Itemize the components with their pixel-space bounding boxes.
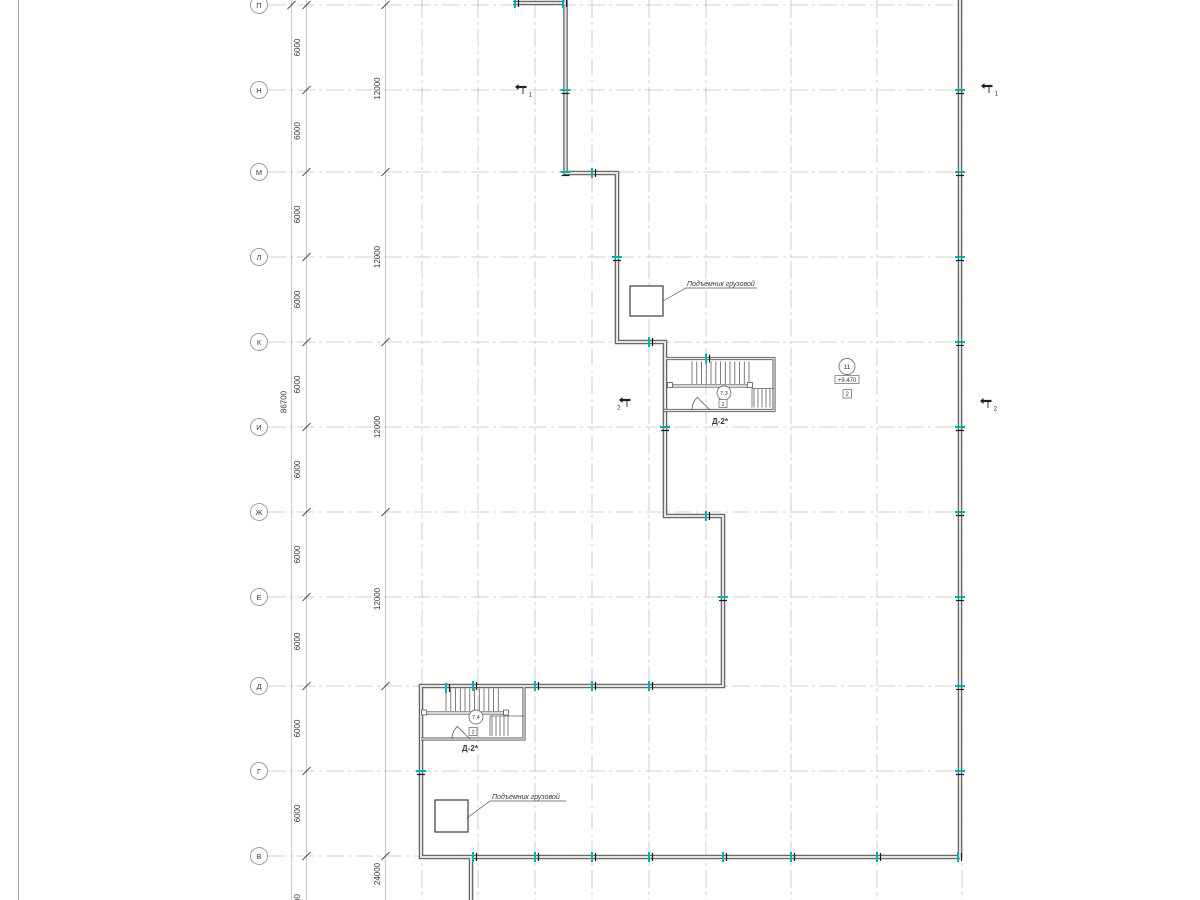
leader-line	[663, 288, 757, 301]
door-mark: 2	[721, 402, 724, 408]
door-swing	[692, 397, 710, 410]
lift-shaft-box	[630, 286, 663, 316]
dimension-label: 6000	[293, 375, 302, 393]
section-arrowhead-icon	[981, 83, 985, 89]
dimension-label: 6000	[293, 804, 302, 822]
axis-label: И	[256, 423, 261, 432]
stair-treads	[692, 362, 749, 385]
door-swing	[452, 726, 470, 739]
elevation-value: +9.470	[838, 378, 857, 384]
stair-flight-edge	[752, 389, 774, 408]
stair-treads	[446, 689, 498, 712]
axis-label: В	[256, 852, 261, 861]
section-mark-1-right: 1	[981, 83, 999, 98]
section-mark-2-left: 2	[617, 397, 631, 412]
wall-outline	[421, 0, 960, 900]
axis-label: К	[257, 338, 262, 347]
section-arrowhead-icon	[515, 84, 519, 90]
stair-upper-tags: 7.3 2 Д-2*	[712, 386, 731, 426]
section-number: 1	[529, 92, 533, 99]
dimension-label: 12000	[373, 77, 382, 100]
freight-lift-upper: Подъемник грузовой	[630, 280, 757, 316]
floor-plan-canvas: ПНМЛКИЖЕДГВ60006000600060006000600060006…	[0, 0, 1200, 900]
room-number: 7.3	[720, 391, 728, 397]
stair-stringer	[424, 712, 506, 714]
freight-lift-lower: Подъемник грузовой	[435, 793, 566, 832]
dimension-label: 12000	[373, 587, 382, 610]
door-type-label: Д-2*	[462, 744, 479, 753]
section-mark-1-left: 1	[515, 84, 533, 99]
leader-line	[467, 801, 566, 818]
dimension-label: 6000	[293, 122, 302, 140]
axis-label: Г	[257, 767, 261, 776]
axis-label: П	[256, 1, 261, 10]
stair-treads	[754, 389, 770, 408]
dimension-label: 12000	[373, 245, 382, 268]
dimension-label: 6000	[293, 460, 302, 478]
axis-label: Е	[256, 593, 261, 602]
dimension-label: 24000	[373, 862, 382, 885]
lift-label: Подъемник грузовой	[687, 280, 755, 288]
wall-ticks	[416, 0, 965, 862]
axis-label: Ж	[256, 508, 263, 517]
level-tag: 11 +9.470 2	[835, 359, 859, 399]
section-number: 1	[995, 91, 999, 98]
room-number: 7.4	[472, 715, 480, 721]
section-number: 2	[994, 406, 998, 413]
stair-treads	[492, 716, 508, 736]
door-mark: 2	[471, 730, 474, 736]
axis-label: Д	[256, 682, 261, 691]
dimension-label: 86700	[280, 390, 289, 413]
dimension-label: 6000	[293, 894, 302, 900]
dimension-label: 6000	[293, 719, 302, 737]
dimension-label: 12000	[373, 415, 382, 438]
lift-shaft-box	[435, 800, 468, 832]
structural-grid: ПНМЛКИЖЕДГВ60006000600060006000600060006…	[251, 0, 963, 900]
stair-post	[422, 710, 427, 715]
wall-outline-core	[421, 0, 960, 900]
dimension-label: 6000	[293, 632, 302, 650]
stair-stringer	[670, 385, 752, 387]
dimension-label: 6000	[293, 290, 302, 308]
building-walls	[421, 0, 960, 900]
section-arrowhead-icon	[980, 398, 984, 404]
axis-label: Н	[256, 86, 261, 95]
section-arrowhead-icon	[619, 397, 623, 403]
axis-label: М	[256, 168, 262, 177]
drawing-sheet: ПНМЛКИЖЕДГВ60006000600060006000600060006…	[0, 0, 1200, 900]
stair-post	[668, 383, 673, 388]
dimension-label: 6000	[293, 38, 302, 56]
dimension-label: 6000	[293, 205, 302, 223]
stair-post	[748, 383, 753, 388]
stair-lower-tags: 7.4 2 Д-2*	[462, 710, 483, 753]
stair-flight-edge	[490, 716, 524, 736]
section-mark-2-right: 2	[980, 398, 998, 413]
section-number: 2	[617, 405, 621, 412]
lift-label: Подъемник грузовой	[492, 793, 560, 801]
position-number: 11	[844, 364, 851, 371]
dimension-label: 6000	[293, 545, 302, 563]
stair-post	[504, 710, 509, 715]
door-type-label: Д-2*	[712, 417, 729, 426]
axis-label: Л	[257, 253, 262, 262]
